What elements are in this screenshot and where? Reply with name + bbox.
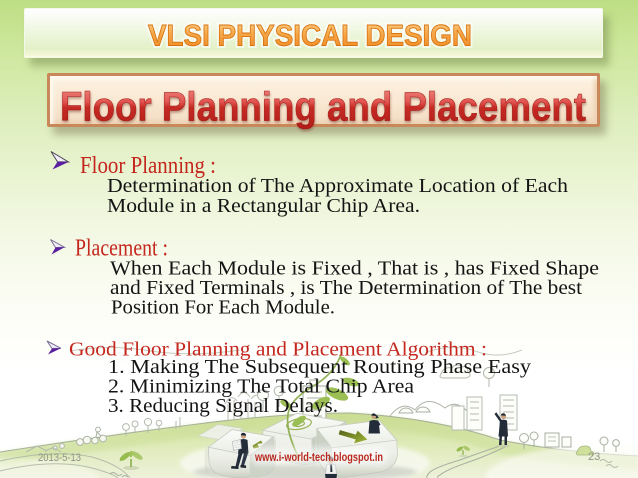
svg-text:2013-5-13: 2013-5-13 (38, 452, 81, 464)
svg-text:23: 23 (588, 451, 600, 463)
svg-text:www.i-world-tech.blogspot.in: www.i-world-tech.blogspot.in (254, 450, 383, 464)
